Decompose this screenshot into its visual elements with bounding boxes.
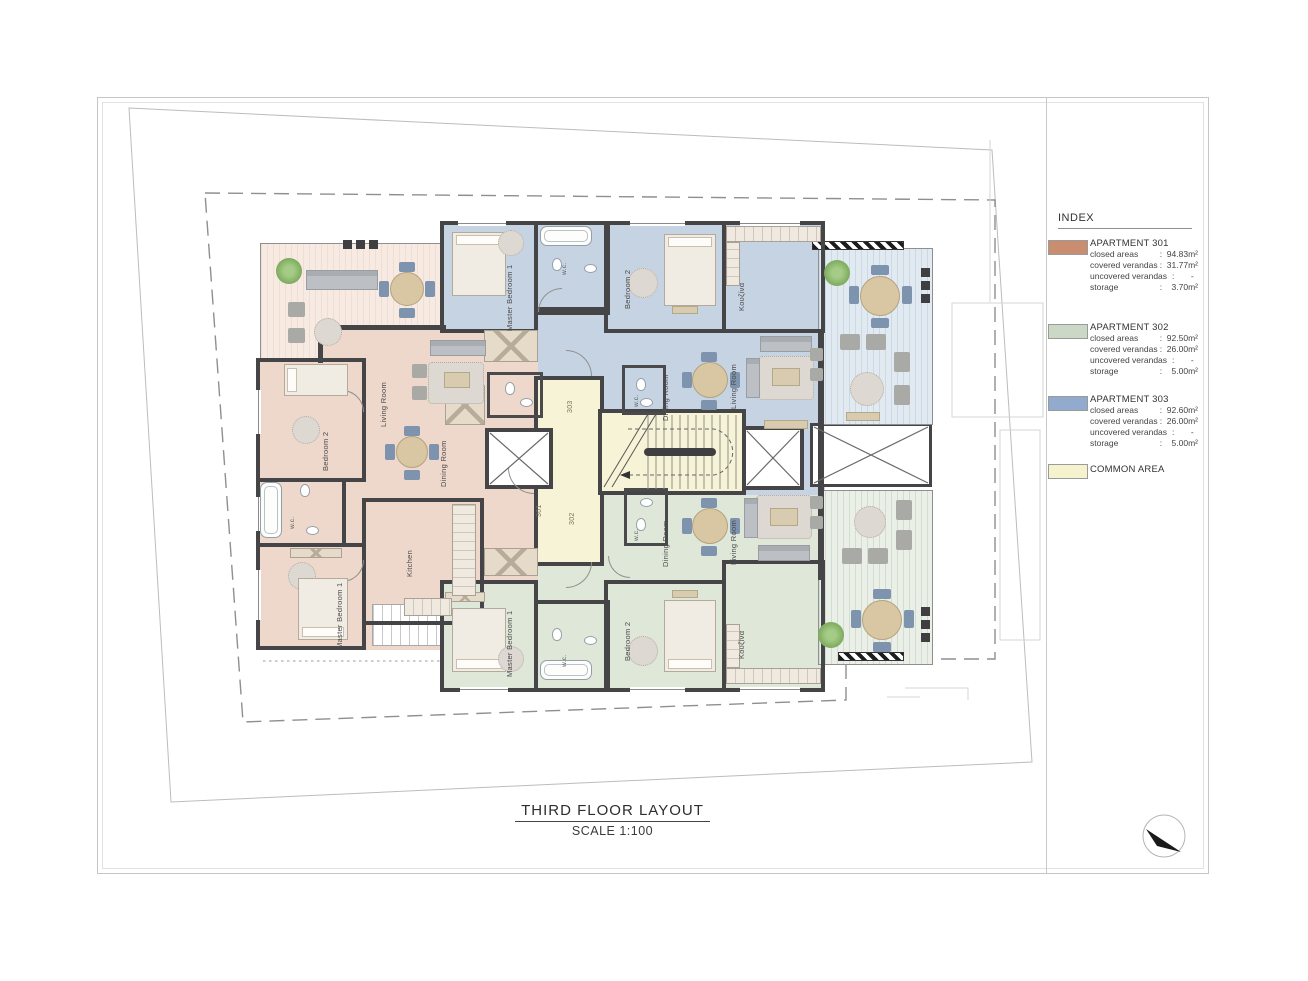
rug [854,506,886,538]
post [921,607,930,616]
label-wc-301: w.c. [289,517,296,529]
legend-row-label: uncovered verandas [1090,271,1172,282]
plan-title: THIRD FLOOR LAYOUT [515,802,710,822]
dining-table [692,508,728,544]
label-living-room-303: Living Room [729,364,738,409]
legend-row-value: : 31.77m² [1160,260,1198,271]
legend-name: COMMON AREA [1090,464,1198,475]
sofa [758,545,810,561]
post [921,633,930,642]
label-bedroom2-301: Bedroom 2 [321,432,330,471]
coffee-table [770,508,798,526]
legend-row-value: : 3.70m² [1160,282,1198,293]
room-wc2-301 [487,372,543,418]
plant [818,622,844,648]
sofa [760,336,812,352]
legend-row-value: : - [1172,355,1194,366]
closet [484,548,538,576]
rug [628,268,658,298]
kitchen-counter [404,598,452,616]
plant [824,260,850,286]
label-dining-room-301: Dining Room [439,440,448,487]
legend-row-value: : 5.00m² [1160,438,1198,449]
coffee-table [772,368,800,386]
legend-common-area: COMMON AREA [1048,462,1198,475]
chair [399,262,415,272]
armchair [412,364,427,378]
rug [498,230,524,256]
chair [701,498,717,508]
title-block: THIRD FLOOR LAYOUT SCALE 1:100 [460,802,765,838]
chair [404,426,420,436]
chair [682,518,692,534]
wall [818,333,824,580]
legend-row-value: : - [1172,271,1194,282]
post [921,294,930,303]
sink [584,264,597,273]
dining-table [860,276,900,316]
post [343,240,352,249]
rug [850,372,884,406]
index-rule [1058,228,1192,229]
label-wc-302: w.c. [561,655,568,667]
closet [484,330,538,362]
label-unit-301: 301 [536,504,543,517]
legend-row-label: covered verandas [1090,344,1160,355]
chair [385,444,395,460]
post [356,240,365,249]
legend-row-label: uncovered verandas [1090,427,1172,438]
kitchen-counter [726,226,821,242]
window [256,390,261,434]
legend-row-label: uncovered verandas [1090,355,1172,366]
legend-name: APARTMENT 301 [1090,238,1198,249]
label-wc2-303: w.c. [633,395,640,407]
label-wc-303: w.c. [561,263,568,275]
post [921,281,930,290]
chair [873,589,891,599]
legend-apartment-302: APARTMENT 302 closed areas: 92.50m² cove… [1048,322,1198,377]
legend-row-value: : 5.00m² [1160,366,1198,377]
legend-swatch-common [1048,464,1088,479]
legend-row-label: closed areas [1090,405,1160,416]
index-divider-line [1046,98,1047,873]
legend-row-value: : - [1172,427,1194,438]
window [460,687,508,692]
sink [520,398,533,407]
dining-table [396,436,428,468]
sink [640,398,653,407]
legend-row-value: : 26.00m² [1160,416,1198,427]
legend-swatch-302 [1048,324,1088,339]
label-master-bedroom-302: Master Bedroom 1 [505,611,514,678]
post [921,620,930,629]
legend-row-label: storage [1090,438,1160,449]
bed [284,364,348,396]
legend-row-value: : 92.50m² [1160,333,1198,344]
kitchen-counter [452,504,476,596]
post [369,240,378,249]
window [740,687,800,692]
chair [379,281,389,297]
label-bedroom2-303: Bedroom 2 [623,270,632,309]
toilet [552,628,562,641]
label-living-room-302: Living Room [729,520,738,565]
legend-swatch-303 [1048,396,1088,411]
chair [849,286,859,304]
label-unit-302: 302 [569,512,576,525]
dining-table [862,600,902,640]
label-master-bedroom-303: Master Bedroom 1 [505,265,514,332]
plan-scale: SCALE 1:100 [460,824,765,838]
legend-row-label: closed areas [1090,333,1160,344]
plant [276,258,302,284]
lounge-chair [840,334,860,350]
window [458,221,506,226]
chair [871,265,889,275]
lounge-chair [896,500,912,520]
legend-row-label: storage [1090,282,1160,293]
post [921,268,930,277]
index-heading: INDEX [1058,212,1094,224]
chair [682,372,692,388]
veranda-301-side [260,327,322,360]
legend-row-label: closed areas [1090,249,1160,260]
legend-swatch-301 [1048,240,1088,255]
label-master-bedroom-301: Master Bedroom 1 [335,583,344,650]
legend-apartment-303: APARTMENT 303 closed areas: 92.60m² cove… [1048,394,1198,449]
bench [846,412,880,421]
rug [314,318,342,346]
legend-name: APARTMENT 303 [1090,394,1198,405]
label-living-room-301: Living Room [379,382,388,427]
armchair [810,496,823,509]
window [630,687,685,692]
label-dining-room-302: Dining Room [661,520,670,567]
light-well-shaft [810,423,932,487]
sofa [430,340,486,356]
tv-bench [764,420,808,429]
label-kitchen-301: Kitchen [405,550,414,577]
sofa [306,270,378,290]
legend-apartment-301: APARTMENT 301 closed areas: 94.83m² cove… [1048,238,1198,293]
desk [672,590,698,598]
bed [664,600,716,672]
coffee-table [444,372,470,388]
dining-table [692,362,728,398]
legend-row-value: : 94.83m² [1160,249,1198,260]
chair [701,352,717,362]
dining-table [390,272,424,306]
label-dining-room-303: Dining Room [661,374,670,421]
sofa [746,358,760,398]
sink [584,636,597,645]
legend-row-label: covered verandas [1090,416,1160,427]
armchair [288,302,305,317]
toilet [505,382,515,395]
chair [851,610,861,628]
label-kitchen-303: Κουζίνα [737,283,746,311]
bathtub [260,482,282,538]
sink [306,526,319,535]
label-kitchen-302: Κουζίνα [737,631,746,659]
pergola-hatch-bottom [838,652,904,661]
label-unit-303: 303 [567,400,574,413]
toilet [300,484,310,497]
drawing-sheet: Living Room Dining Room Bedroom 2 Master… [0,0,1308,981]
kitchen-counter [726,242,740,286]
rug [292,416,320,444]
window [630,221,685,226]
stairwell [598,409,746,495]
label-bedroom2-302: Bedroom 2 [623,622,632,661]
elevator-right [742,426,804,490]
legend-row-value: : 26.00m² [1160,344,1198,355]
legend-row-label: covered verandas [1090,260,1160,271]
armchair [810,348,823,361]
legend-row-label: storage [1090,366,1160,377]
rug [628,636,658,666]
legend-name: APARTMENT 302 [1090,322,1198,333]
bathtub [540,226,592,246]
legend-row-value: : 92.60m² [1160,405,1198,416]
label-wc2-302: w.c. [633,529,640,541]
kitchen-counter [726,668,821,684]
sink [640,498,653,507]
lounge-chair [842,548,862,564]
wardrobe [290,548,342,558]
pergola-hatch-top [812,241,904,250]
lounge-chair [894,352,910,372]
desk [672,306,698,314]
window [256,570,261,620]
toilet [636,378,646,391]
sofa [744,498,758,538]
bed [664,234,716,306]
